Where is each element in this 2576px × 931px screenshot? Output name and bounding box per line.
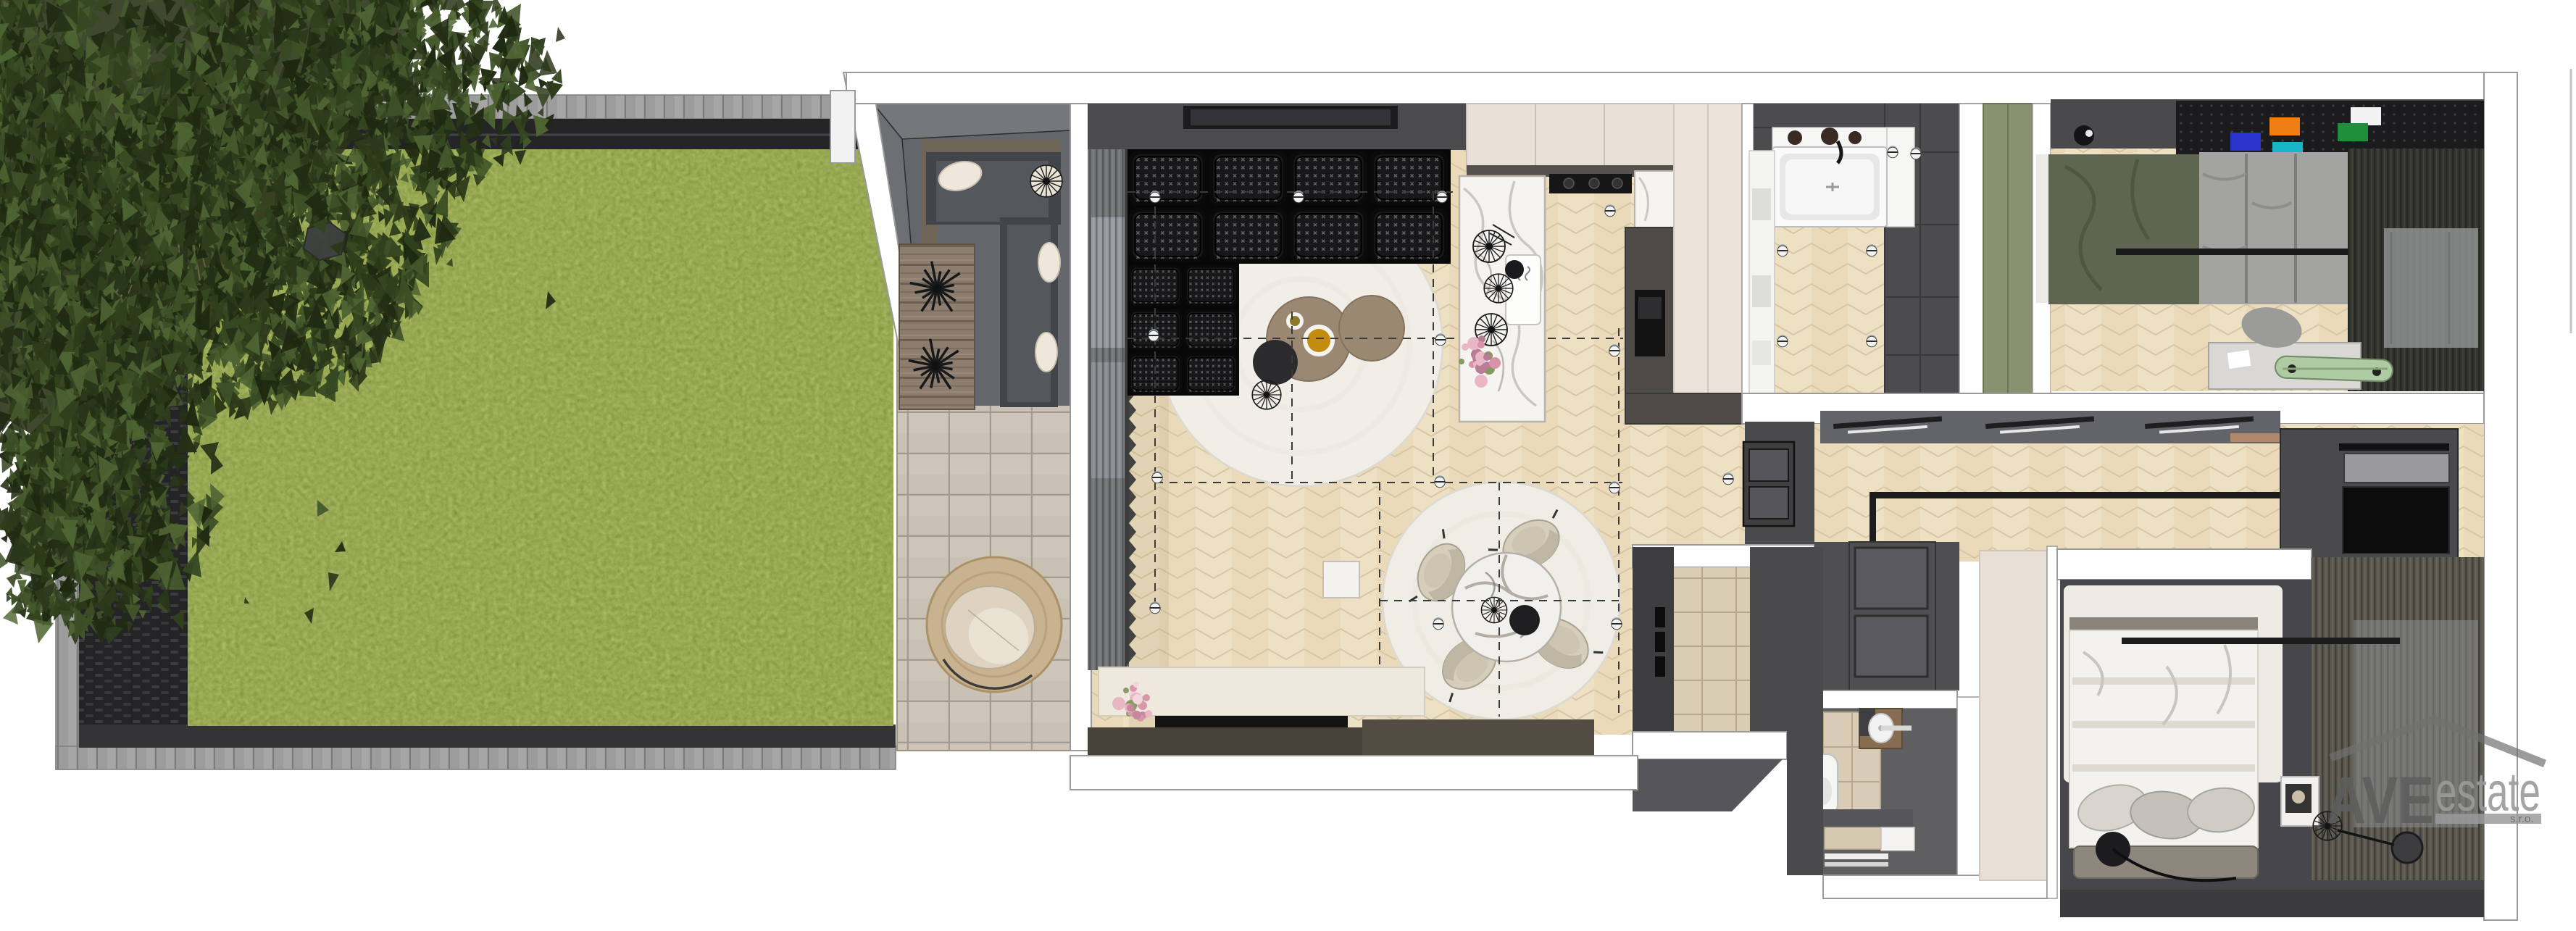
svg-text:AVE: AVE	[2327, 764, 2434, 838]
svg-text:s.r.o.: s.r.o.	[2510, 813, 2534, 825]
